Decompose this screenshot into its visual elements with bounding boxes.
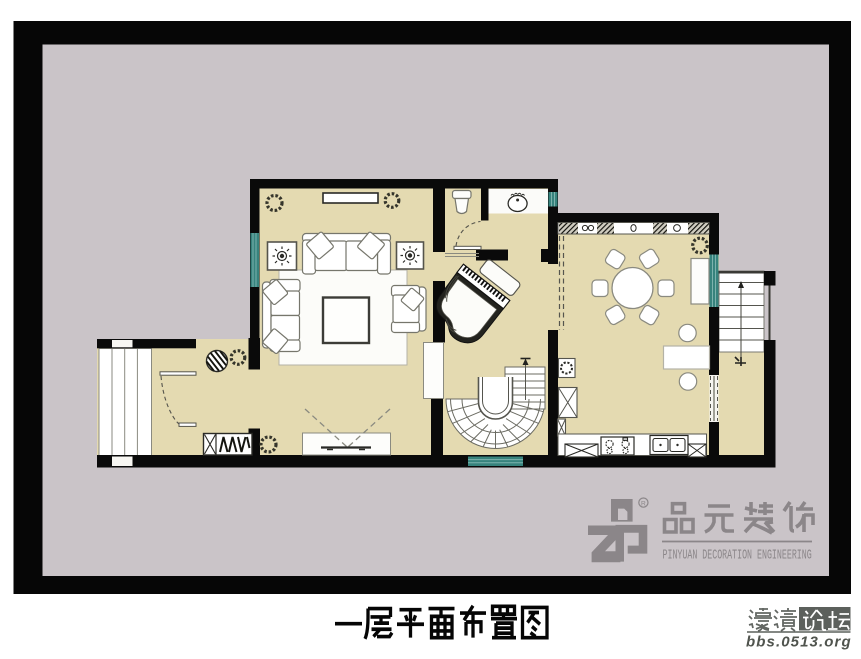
- svg-text:bbs.0513.org: bbs.0513.org: [746, 634, 852, 651]
- svg-text:R: R: [641, 501, 646, 508]
- svg-text:PINYUAN DECORATION ENGINEERING: PINYUAN DECORATION ENGINEERING: [663, 549, 812, 563]
